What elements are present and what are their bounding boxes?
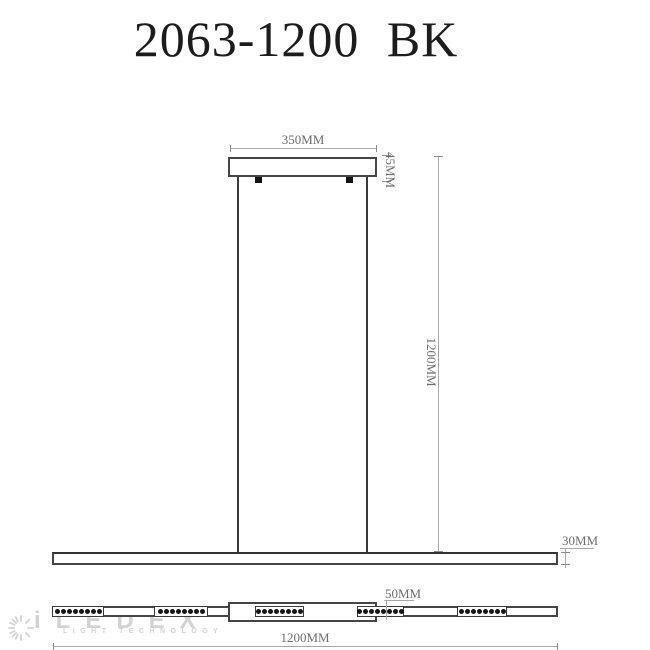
suspension-wire-left	[237, 177, 239, 552]
led-dot	[369, 609, 374, 614]
dim-tick	[557, 643, 558, 650]
led-dot	[459, 609, 464, 614]
led-dot	[465, 609, 470, 614]
dim-tick	[561, 564, 570, 565]
dim-tick	[376, 145, 377, 152]
canopy-mount-left	[255, 177, 262, 183]
led-dot	[182, 609, 187, 614]
dim-tick	[53, 643, 54, 650]
dim-label-overall-length: 1200MM	[155, 630, 455, 646]
led-dot	[393, 609, 398, 614]
ceiling-canopy-box	[228, 157, 377, 177]
led-dot	[73, 609, 78, 614]
led-dot	[85, 609, 90, 614]
led-dot	[471, 609, 476, 614]
dim-line-center-offset	[384, 600, 414, 601]
dim-tick	[561, 552, 570, 553]
led-dot	[268, 609, 273, 614]
led-strip-segment	[154, 606, 208, 617]
dim-extension-line	[386, 600, 387, 620]
dim-line-canopy-width	[230, 148, 377, 149]
led-dot	[363, 609, 368, 614]
led-dot	[55, 609, 60, 614]
dim-line-overall-length	[53, 646, 558, 647]
product-title: 2063-1200 BK	[0, 12, 592, 66]
led-dot	[477, 609, 482, 614]
suspension-wire-right	[366, 177, 368, 552]
led-dot	[274, 609, 279, 614]
dim-tick	[230, 145, 231, 152]
led-dot	[91, 609, 96, 614]
led-dot	[200, 609, 205, 614]
led-strip-segment	[52, 606, 104, 617]
led-dot	[170, 609, 175, 614]
led-dot	[286, 609, 291, 614]
led-strip-segment	[357, 606, 404, 617]
led-dot	[164, 609, 169, 614]
led-dot	[357, 609, 362, 614]
led-dot	[188, 609, 193, 614]
led-dot	[194, 609, 199, 614]
led-dot	[79, 609, 84, 614]
led-dot	[483, 609, 488, 614]
led-dot	[158, 609, 163, 614]
led-dot	[387, 609, 392, 614]
led-dot	[501, 609, 506, 614]
led-dot	[399, 609, 404, 614]
led-dot	[375, 609, 380, 614]
led-dot	[176, 609, 181, 614]
led-dot	[262, 609, 267, 614]
dim-label-bar-thickness: 30MM	[562, 533, 598, 549]
technical-drawing-canvas: 2063-1200 BK 350MM 45MM 1200MM 30MM 50MM…	[0, 0, 650, 650]
led-dot	[67, 609, 72, 614]
led-dot	[61, 609, 66, 614]
dim-label-canopy-height: 45MM	[382, 152, 398, 188]
brand-starburst-icon	[6, 613, 36, 643]
led-dot	[298, 609, 303, 614]
led-strip-segment	[457, 606, 507, 617]
light-bar-side-view	[52, 552, 558, 565]
dim-label-canopy-width: 350MM	[228, 132, 378, 148]
dim-label-drop-height: 1200MM	[423, 333, 439, 391]
led-dot	[280, 609, 285, 614]
led-dot	[489, 609, 494, 614]
led-dot	[256, 609, 261, 614]
led-strip-segment	[255, 606, 304, 617]
led-dot	[97, 609, 102, 614]
led-dot	[495, 609, 500, 614]
canopy-mount-right	[346, 177, 353, 183]
dim-tick	[434, 156, 443, 157]
dim-extension-line	[565, 548, 566, 568]
led-dot	[292, 609, 297, 614]
